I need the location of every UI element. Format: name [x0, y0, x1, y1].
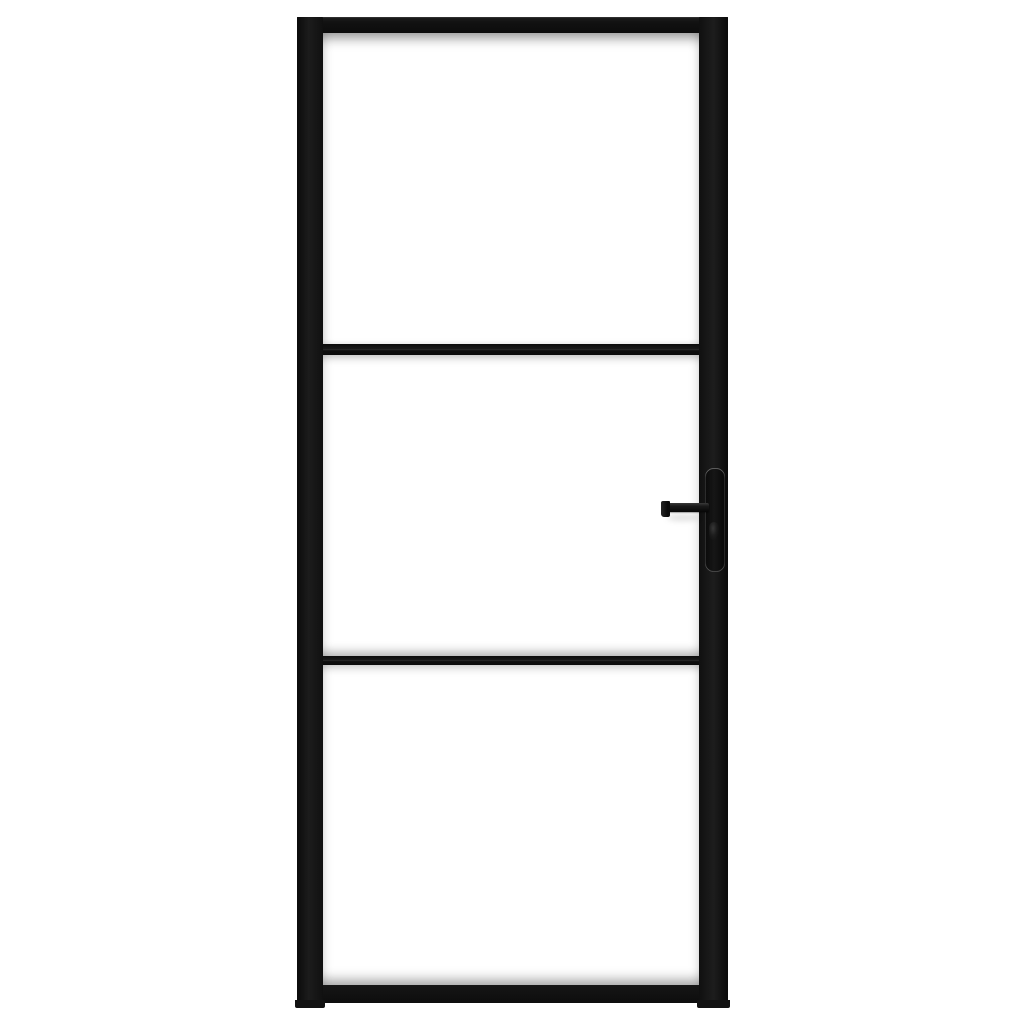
door-frame-left-stile — [297, 17, 323, 1005]
door-frame-right-foot — [697, 1000, 730, 1008]
mullion-upper — [323, 344, 699, 355]
door-frame-left-foot — [295, 1000, 325, 1008]
product-photo — [0, 0, 1024, 1024]
mullion-lower — [323, 656, 699, 665]
glass-panel-bottom — [323, 665, 699, 985]
door-frame-right-stile — [699, 17, 728, 1006]
glass-panel-middle — [323, 355, 699, 656]
glass-panel-top — [323, 33, 699, 344]
door-frame-top-rail — [297, 17, 728, 33]
door-frame-bottom-rail — [297, 985, 728, 1003]
glass-door — [297, 17, 728, 1008]
